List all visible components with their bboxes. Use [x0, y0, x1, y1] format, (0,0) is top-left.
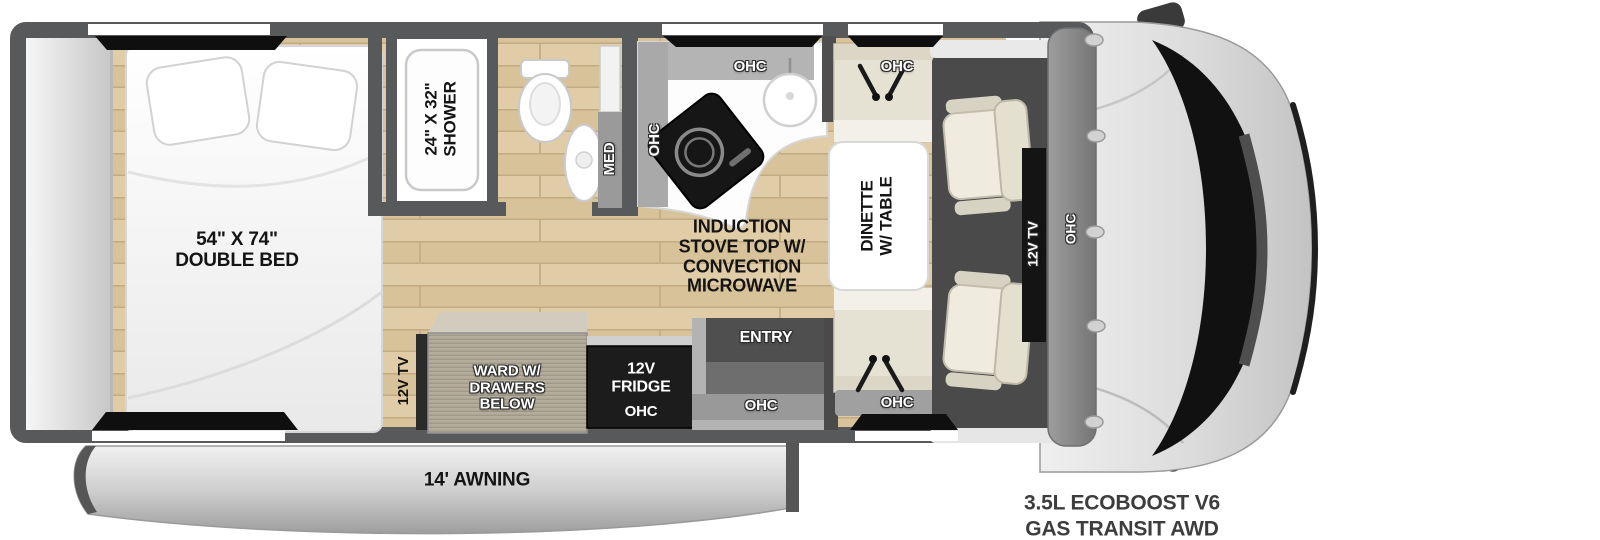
awning-label: 14' AWNING — [424, 471, 530, 492]
entry-label: ENTRY — [740, 329, 793, 347]
window-shade — [850, 414, 958, 430]
rv-floorplan: 54" X 74"DOUBLE BED 24" X 32"SHOWER MED … — [0, 0, 1600, 540]
fridge-label: 12VFRIDGE — [611, 360, 670, 395]
shower-label: 24" X 32"SHOWER — [422, 81, 459, 156]
engine-label: 3.5L ECOBOOST V6GAS TRANSIT AWD — [1024, 490, 1220, 540]
bedroom-tv-label: 12V TV — [396, 357, 413, 406]
fridge-ohc-label: OHC — [625, 404, 658, 421]
captain-chair-driver — [941, 93, 1035, 216]
pillow — [144, 55, 251, 147]
captain-chair-passenger — [941, 270, 1035, 393]
dinette-ohc-bottom-label: OHC — [881, 395, 914, 412]
wardrobe-label: WARD W/DRAWERSBELOW — [469, 363, 544, 413]
window-shade — [95, 36, 287, 50]
window-shade — [92, 412, 298, 430]
entry-ohc-label: OHC — [745, 398, 778, 415]
kitchen-ohc-side-label: OHC — [647, 124, 664, 157]
double-bed-label: 54" X 74"DOUBLE BED — [175, 230, 299, 272]
dinette-ohc-top-label: OHC — [881, 59, 914, 76]
cab-tv-label: 12V TV — [1025, 221, 1040, 267]
bath-sink — [565, 125, 603, 201]
cab-ohc-label: OHC — [1063, 214, 1078, 245]
pillow — [255, 60, 359, 152]
kitchen-ohc-top-label: OHC — [734, 59, 767, 76]
induction-stove-label: INDUCTIONSTOVE TOP W/ CONVECTIONMICROWAV… — [679, 217, 806, 296]
dinette-label: DINETTEW/ TABLE — [858, 176, 895, 255]
toilet — [519, 60, 571, 142]
med-label: MED — [602, 143, 619, 176]
window-shade — [848, 36, 943, 47]
cab-interior — [930, 28, 1105, 446]
window-shade — [663, 36, 822, 47]
bedroom-tv — [416, 334, 428, 430]
